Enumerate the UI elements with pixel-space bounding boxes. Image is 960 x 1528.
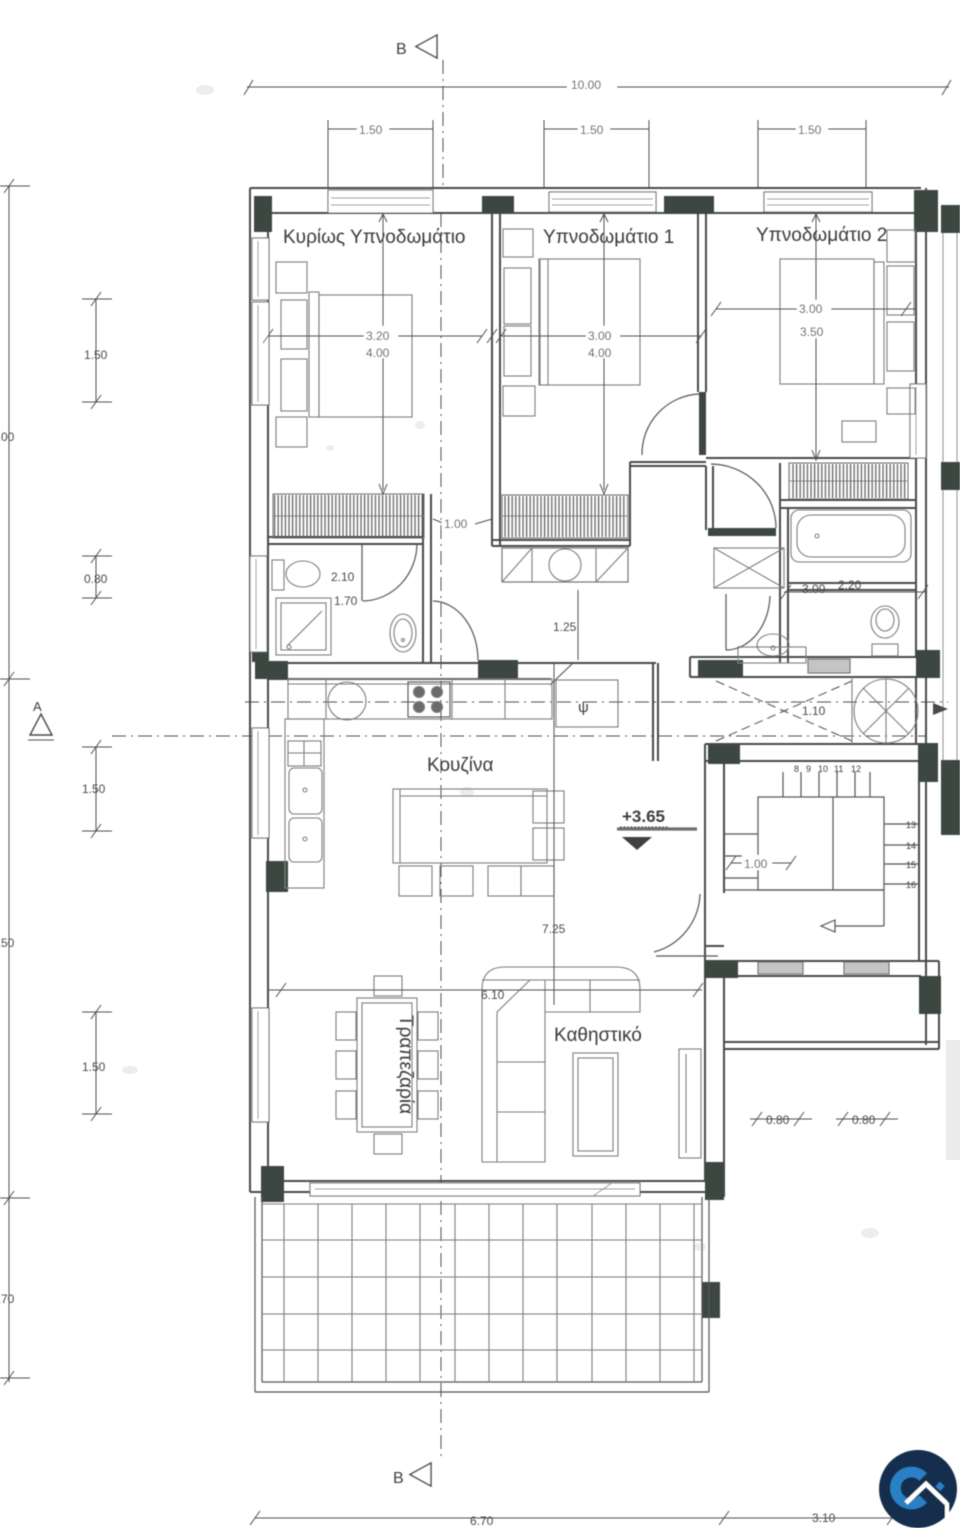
svg-text:+3.65: +3.65 [622, 807, 665, 826]
svg-text:1.00: 1.00 [744, 857, 768, 871]
svg-text:B: B [396, 41, 407, 58]
svg-text:3.00: 3.00 [802, 582, 826, 596]
svg-text:3.20: 3.20 [366, 329, 390, 343]
svg-text:7.25: 7.25 [542, 922, 566, 936]
svg-text:A: A [33, 699, 42, 714]
svg-text:2.10: 2.10 [331, 570, 355, 584]
svg-text:3.10: 3.10 [812, 1511, 836, 1525]
svg-text:ψ: ψ [578, 699, 589, 716]
svg-text:9: 9 [806, 764, 811, 774]
svg-text:15: 15 [906, 860, 916, 870]
svg-text:0.80: 0.80 [852, 1113, 876, 1127]
svg-text:6.70: 6.70 [470, 1514, 494, 1528]
svg-text:13: 13 [906, 820, 916, 830]
svg-text:4.00: 4.00 [366, 346, 390, 360]
svg-text:Κουζίνα: Κουζίνα [427, 755, 493, 776]
svg-text:4.00: 4.00 [588, 346, 612, 360]
svg-text:1.50: 1.50 [84, 348, 108, 362]
svg-text:10.00: 10.00 [571, 78, 601, 92]
svg-text:B: B [393, 1470, 404, 1487]
svg-text:Υπνοδωμάτιο 2: Υπνοδωμάτιο 2 [756, 225, 887, 246]
svg-text:3.00: 3.00 [588, 329, 612, 343]
svg-text:11: 11 [834, 764, 843, 774]
svg-text:Τραπεζαρία: Τραπεζαρία [395, 1015, 416, 1114]
svg-text:2.20: 2.20 [838, 578, 862, 592]
svg-text:14: 14 [906, 841, 916, 851]
svg-text:6.10: 6.10 [481, 988, 505, 1002]
svg-text:12: 12 [851, 764, 861, 774]
svg-text:16: 16 [906, 880, 916, 890]
svg-text:Υπνοδωμάτιο 1: Υπνοδωμάτιο 1 [543, 227, 674, 248]
svg-text:1.50: 1.50 [82, 782, 106, 796]
svg-text:1.50: 1.50 [798, 123, 822, 137]
svg-text:7.00: 7.00 [0, 430, 15, 444]
svg-text:0.80: 0.80 [84, 572, 108, 586]
svg-text:1.50: 1.50 [82, 1060, 106, 1074]
svg-text:Κυρίως Υπνοδωμάτιο: Κυρίως Υπνοδωμάτιο [283, 227, 466, 248]
svg-text:10: 10 [818, 764, 828, 774]
svg-text:Καθηστικό: Καθηστικό [554, 1025, 642, 1046]
svg-text:8: 8 [794, 764, 799, 774]
svg-text:1.70: 1.70 [334, 594, 358, 608]
svg-text:3.00: 3.00 [799, 302, 823, 316]
svg-text:1.50: 1.50 [359, 123, 383, 137]
svg-text:0.80: 0.80 [766, 1113, 790, 1127]
svg-text:4.50: 4.50 [0, 936, 15, 950]
svg-text:1.10: 1.10 [802, 704, 826, 718]
svg-text:3.50: 3.50 [800, 325, 824, 339]
svg-text:1.25: 1.25 [553, 620, 577, 634]
svg-text:1.70: 1.70 [0, 1292, 15, 1306]
svg-text:1.00: 1.00 [444, 517, 468, 531]
svg-text:1.50: 1.50 [580, 123, 604, 137]
